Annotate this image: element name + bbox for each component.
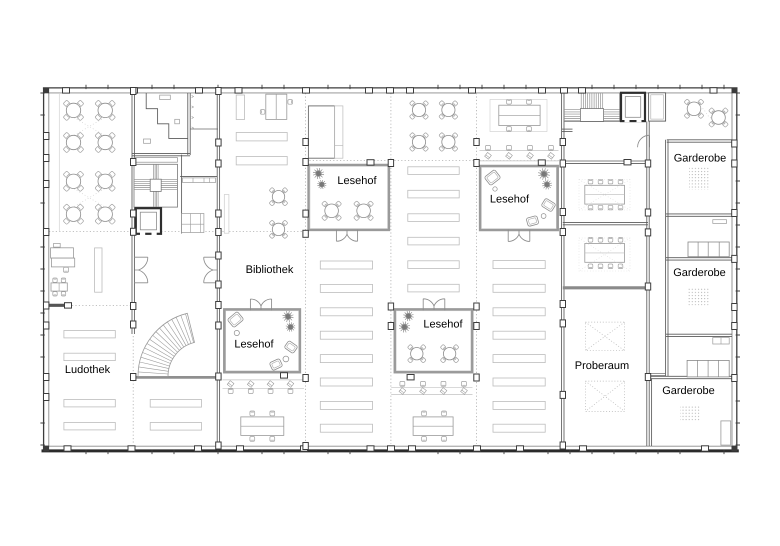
svg-text:Lesehof: Lesehof [234, 339, 274, 351]
svg-text:Bibliothek: Bibliothek [246, 264, 294, 276]
svg-text:Ludothek: Ludothek [65, 364, 111, 376]
svg-text:Garderobe: Garderobe [662, 385, 715, 397]
svg-text:Lesehof: Lesehof [337, 175, 377, 187]
svg-text:Proberaum: Proberaum [575, 360, 629, 372]
svg-text:Garderobe: Garderobe [674, 153, 727, 165]
svg-text:Lesehof: Lesehof [423, 319, 463, 331]
svg-text:Garderobe: Garderobe [673, 267, 726, 279]
svg-text:Lesehof: Lesehof [490, 194, 530, 206]
